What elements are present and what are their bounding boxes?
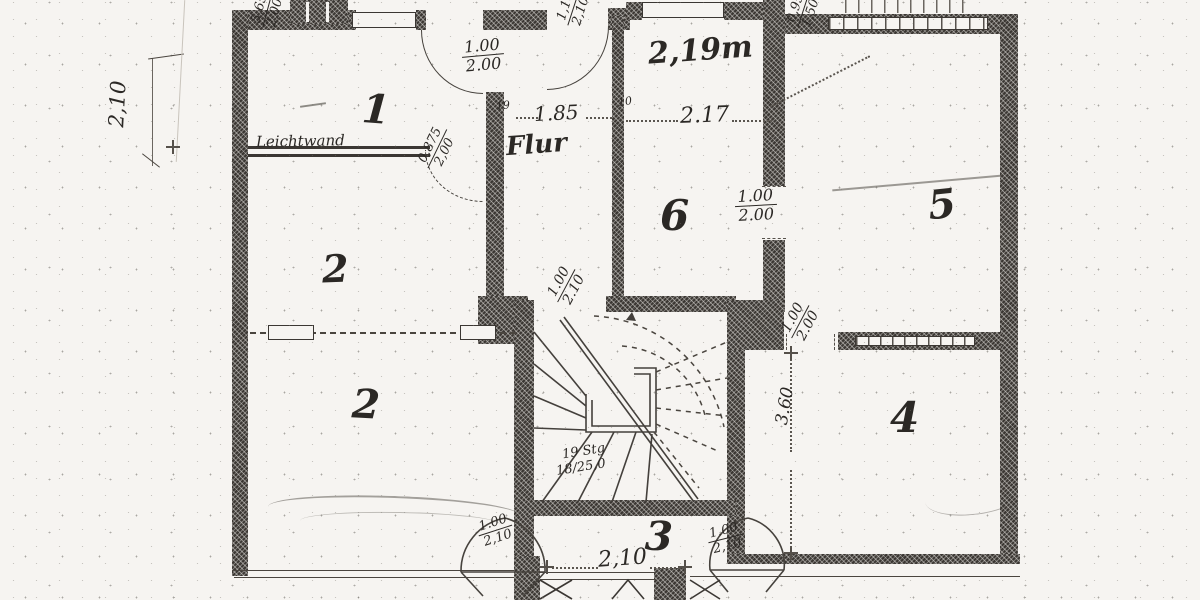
extension-line-faint [176,0,185,162]
dim-cross-tick [784,546,798,560]
dim-room4-width: 3.60 [772,386,798,427]
window-sill-ticks [845,0,967,13]
room-label-1: 1 [360,85,391,134]
dim-cross-tick [678,560,692,574]
dim-corridor-width: 2,10 [597,544,648,572]
dim-cross-tick [166,140,180,154]
dim-corridor-left [552,567,598,569]
dim-door-room1: 1.00 2.00 [461,36,506,75]
height-note-label: 2,19m [647,29,754,71]
dashed-wall-block [460,325,496,340]
dim-room4-vertical-2 [790,470,792,548]
dim-chain-room6-2 [732,120,772,122]
dim-chain-room6 [626,120,678,122]
room-label-5: 5 [926,180,959,230]
room-label-4: 4 [890,393,919,442]
top-wall-pier [483,10,547,30]
stairhall-pier [727,300,784,350]
wall-flur-room6 [612,16,624,302]
dim-arrow-tick [142,153,160,167]
dim-tick [148,53,184,59]
room-label-6: 6 [660,191,689,240]
window-room219-top [642,2,724,18]
pencil-stroke [300,102,326,108]
dim-door-room6-room5: 1.00 2.00 [734,187,777,225]
dim-cross-tick [540,560,554,574]
window-pier [724,2,763,20]
dim-line-left-vertical [152,58,153,166]
chimney-flue-line [326,2,329,22]
dim-door-flur-stairs: 1.00 2.10 [544,262,589,310]
dim-room6-width: 2.17 [680,102,730,129]
dim-left-height: 2,10 [104,80,130,128]
wall-room6-room5-upper [763,0,785,186]
room-label-2-lower: 2 [351,380,381,428]
window-room1-top [352,12,416,28]
wall-thickness-19: 19 [495,98,510,112]
window-pier [626,2,642,20]
window-room5-bottom [855,336,975,346]
bottom-window-braces [516,578,726,600]
chimney-flue-line [306,2,309,22]
pencil-stroke [832,175,1002,192]
stairhall-wall-top [606,296,736,312]
room-label-2-upper: 2 [321,246,349,292]
stair-walkline-arrow [626,312,636,321]
wall-room1-flur [486,92,504,304]
outer-wall-left [232,10,248,576]
wall-thickness-10: 10 [617,94,633,109]
outer-wall-right [1000,14,1018,562]
dim-flur-width: 1.85 [533,100,579,126]
floor-plan-scan: 1 2 2 3 4 5 6 2,19m Flur Leichtwand 1.85… [0,0,1200,600]
dim-cross-tick [784,346,798,360]
leichtwand-label: Leichtwand [256,131,345,151]
leichtwand-line-2 [248,154,430,157]
room-label-3: 3 [644,513,673,561]
top-wall-pier [416,10,426,30]
chimney-block [290,0,348,24]
door-reveal-tick [762,238,786,239]
dashed-wall-block [268,325,314,340]
door-reveal-tick [834,334,835,350]
door-arc-flur-top [547,26,609,90]
window-room5-top [828,17,988,30]
dim-chain-flur-2 [586,117,612,119]
flur-label: Flur [505,128,568,162]
